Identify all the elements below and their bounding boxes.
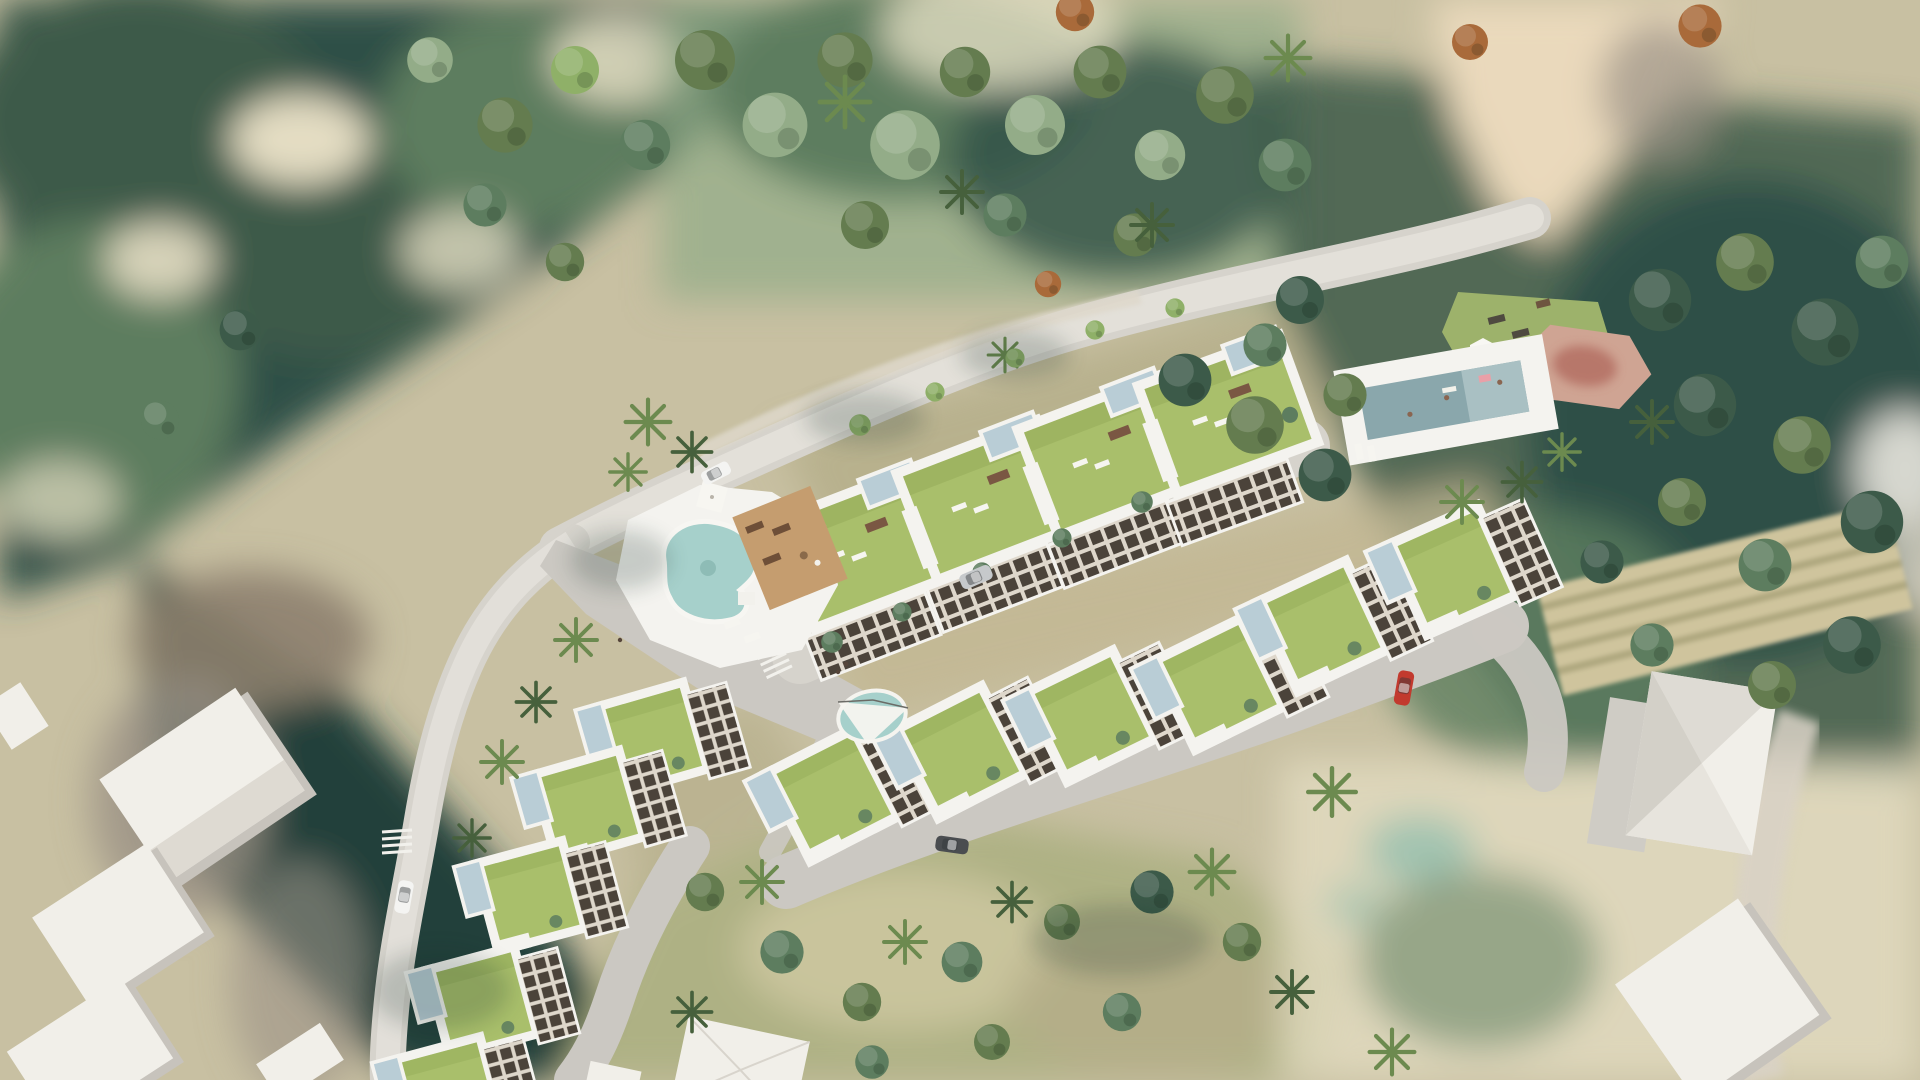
tree bbox=[1841, 491, 1903, 553]
palm-tree bbox=[884, 921, 926, 963]
tree bbox=[870, 110, 940, 180]
rust-tree bbox=[1035, 271, 1061, 297]
palm-tree bbox=[481, 741, 523, 783]
palm-tree bbox=[555, 619, 597, 661]
palm-tree bbox=[672, 432, 711, 471]
palm-tree bbox=[941, 171, 983, 213]
tree bbox=[760, 930, 803, 973]
rust-tree bbox=[1452, 24, 1488, 60]
tree bbox=[1159, 354, 1212, 407]
palm-tree bbox=[1502, 462, 1541, 501]
tree bbox=[1629, 269, 1691, 331]
tree bbox=[1739, 539, 1792, 592]
palm-tree bbox=[992, 882, 1031, 921]
tree bbox=[220, 310, 261, 351]
palm-tree bbox=[1544, 434, 1580, 470]
tree bbox=[463, 183, 506, 226]
rust-tree bbox=[1678, 4, 1721, 47]
tree bbox=[1243, 323, 1286, 366]
palm-tree bbox=[516, 682, 555, 721]
palm-tree bbox=[610, 454, 646, 490]
tree bbox=[843, 983, 881, 1021]
pool-steps bbox=[738, 592, 755, 605]
tree bbox=[1226, 396, 1284, 454]
tree bbox=[1748, 661, 1796, 709]
palm-tree bbox=[820, 77, 870, 127]
shrub bbox=[821, 631, 843, 653]
tree bbox=[841, 201, 889, 249]
palm-tree bbox=[454, 820, 490, 856]
tree bbox=[407, 37, 453, 83]
tree bbox=[551, 46, 599, 94]
tree bbox=[974, 1024, 1010, 1060]
palm-tree bbox=[626, 400, 671, 445]
tree bbox=[1856, 236, 1909, 289]
palm-tree bbox=[1271, 971, 1313, 1013]
shrub bbox=[892, 602, 911, 621]
palm-tree bbox=[1441, 481, 1483, 523]
tree bbox=[477, 97, 532, 152]
tree bbox=[1823, 616, 1881, 674]
palm-tree bbox=[741, 861, 783, 903]
tree bbox=[1580, 540, 1623, 583]
tree bbox=[1135, 130, 1185, 180]
shrub bbox=[1052, 528, 1071, 547]
tree bbox=[1276, 276, 1324, 324]
tree bbox=[1005, 95, 1065, 155]
tree bbox=[1259, 139, 1312, 192]
tree bbox=[1716, 233, 1774, 291]
palm-tree bbox=[1308, 768, 1356, 816]
tree bbox=[1773, 416, 1831, 474]
pool-shadow bbox=[700, 560, 716, 576]
tree bbox=[1323, 373, 1366, 416]
palm-tree bbox=[1631, 401, 1673, 443]
tree bbox=[620, 120, 670, 170]
tree bbox=[1299, 449, 1352, 502]
tree bbox=[940, 47, 990, 97]
tree bbox=[942, 942, 983, 983]
aerial-site-plan bbox=[0, 0, 1920, 1080]
tree bbox=[141, 401, 179, 439]
tree bbox=[1674, 374, 1736, 436]
tree bbox=[1223, 923, 1261, 961]
palm-tree bbox=[1266, 36, 1311, 81]
palm-tree bbox=[1131, 204, 1173, 246]
shrub bbox=[925, 382, 944, 401]
tree bbox=[855, 1045, 889, 1079]
tree bbox=[675, 30, 735, 90]
shrub bbox=[1131, 491, 1153, 513]
tree bbox=[1196, 66, 1254, 124]
tree bbox=[983, 193, 1026, 236]
shrub bbox=[1165, 298, 1184, 317]
palm-tree bbox=[672, 992, 711, 1031]
tree bbox=[1074, 46, 1127, 99]
palm-tree bbox=[1190, 850, 1235, 895]
tree bbox=[1103, 993, 1141, 1031]
tree bbox=[743, 93, 808, 158]
tree bbox=[686, 873, 724, 911]
aerial-render bbox=[0, 0, 1920, 1080]
tree bbox=[1630, 623, 1673, 666]
tree bbox=[1658, 478, 1706, 526]
tree bbox=[1791, 298, 1858, 365]
shrub bbox=[1085, 320, 1104, 339]
palm-tree bbox=[1370, 1030, 1415, 1075]
tree bbox=[546, 243, 584, 281]
